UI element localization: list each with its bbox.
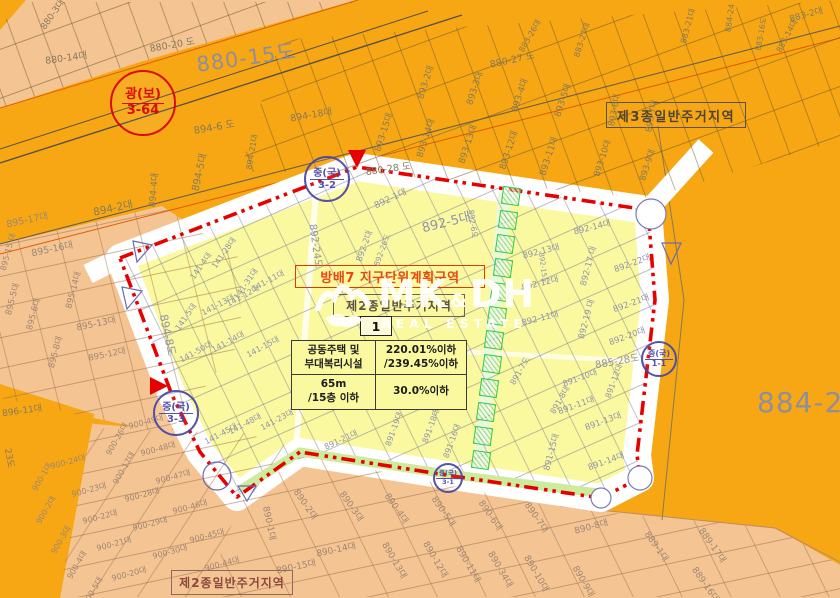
zoning-map: 880-15도 884-2 제3종일반주거지역 제2종일반주거지역 제2종일반주… bbox=[0, 0, 840, 598]
parcel-label: 900-4대 bbox=[65, 549, 90, 581]
green-hatched-square bbox=[495, 234, 515, 254]
parcel-label: 894-21대 bbox=[243, 133, 260, 170]
parcel-label: 891-21대 bbox=[322, 427, 359, 452]
parcel-label: 893-4대 bbox=[507, 77, 530, 114]
stamp-top-text: 광(보) bbox=[122, 88, 164, 103]
green-hatched-square bbox=[471, 450, 491, 470]
parcel-label: 892-17 대 bbox=[577, 245, 599, 287]
stamp-bottom-text: 3-2 bbox=[318, 180, 336, 191]
parcel-label: 892-5대 bbox=[420, 206, 473, 236]
parcel-label: 141-28대 bbox=[209, 235, 238, 271]
stamp-bottom-text: 3-3 bbox=[167, 414, 185, 425]
parcel-label: 894-4대 bbox=[145, 172, 161, 207]
plan-title-box: 방배7 지구단위계획구역 bbox=[295, 265, 485, 288]
parcel-label: 141-14대 bbox=[210, 329, 247, 355]
parcel-label: 896-11대 bbox=[1, 401, 43, 419]
parcel-label: 900-1대 bbox=[30, 461, 55, 493]
parcel-label: 892-13대 bbox=[521, 241, 561, 262]
parcel-label: 892-26도 bbox=[371, 232, 393, 267]
parcel-label: 892-11대 bbox=[520, 308, 560, 329]
parcel-label: 883-2대 bbox=[788, 3, 825, 24]
parcel-label: 891-14대 bbox=[586, 449, 626, 473]
parcel-label: 893-15대 bbox=[371, 111, 396, 153]
parcel-label: 884-24 bbox=[724, 3, 737, 32]
parcel-label: 141-13대 bbox=[200, 292, 237, 318]
stamp-bottom-text: 1-1 bbox=[652, 360, 666, 369]
parcel-label: 891-7도 bbox=[508, 355, 533, 387]
parcel-label: 900-5대 bbox=[81, 575, 106, 598]
parcel-label: 23도 bbox=[2, 447, 18, 469]
stamp-top-text: 중(국) bbox=[159, 402, 193, 414]
parcel-label: 141-15대 bbox=[245, 334, 282, 360]
table-cell-use: 공동주택 및 부대복리시설 bbox=[292, 341, 376, 375]
parcel-label: 141-50대 bbox=[178, 339, 215, 365]
parcel-label: 894-8도 bbox=[156, 313, 180, 358]
parcel-label: 891-10대 bbox=[561, 367, 598, 390]
parcel-label: 895-17대 bbox=[5, 208, 49, 231]
green-hatched-square bbox=[490, 282, 510, 302]
parcel-label: 883-21대 bbox=[678, 7, 698, 44]
parcel-label: 889-1대 bbox=[642, 528, 672, 564]
plan-info-table: 공동주택 및 부대복리시설 220.01%이하 /239.45%이하 65m /… bbox=[291, 340, 467, 410]
parcel-label: 883-26대 bbox=[516, 18, 543, 54]
parcel-label: 893-13대 bbox=[455, 123, 480, 165]
parcel-label: 880-28 도 bbox=[365, 158, 412, 178]
parcel-label: 891-15대 bbox=[540, 432, 561, 472]
parcel-label: 900-2대 bbox=[34, 494, 59, 526]
stamp-top-text: 중(국) bbox=[310, 168, 344, 180]
parcel-label: 889-17대 bbox=[696, 525, 730, 565]
parcel-label: 880-27 도 bbox=[488, 47, 535, 70]
parcel-label: 885-28도 bbox=[594, 349, 641, 372]
parcel-label: 892-20대 bbox=[607, 324, 647, 348]
parcel-label: 895-5대 bbox=[2, 282, 22, 317]
parcel-label: 141-48대 bbox=[227, 411, 264, 437]
parcel-label: 895-8대 bbox=[45, 335, 65, 370]
parcel-label: 891-12대 bbox=[603, 362, 626, 399]
parcel-label: 900-22대 bbox=[81, 507, 118, 527]
parcel-label: 892-19 대 bbox=[575, 298, 597, 340]
big-road-label: 880-15도 bbox=[194, 35, 298, 79]
parcel-label: 880-3대 bbox=[37, 0, 67, 32]
parcel-label: 893-5대 bbox=[550, 82, 573, 119]
green-hatched-square bbox=[479, 378, 499, 398]
parcel-label: 895-6대 bbox=[23, 297, 43, 332]
table-cell-far: 220.01%이하 /239.45%이하 bbox=[376, 341, 466, 375]
parcel-label: 141-12대 bbox=[225, 283, 262, 309]
parcel-label: 895-13대 bbox=[75, 312, 117, 333]
map-stamp: 중(국)3-1 bbox=[433, 463, 463, 493]
parcel-label: 141-5대 bbox=[173, 301, 200, 332]
parcel-label: 900-29대 bbox=[131, 514, 168, 534]
zone-label-2nd-residential-plan: 제2종일반주거지역 bbox=[333, 294, 465, 317]
parcel-label: 900-3대 bbox=[49, 524, 74, 556]
parcel-label: 900-17대 bbox=[110, 450, 137, 486]
green-hatched-square bbox=[498, 210, 518, 230]
green-hatched-square bbox=[476, 402, 496, 422]
parcel-label: 893-3대 bbox=[462, 70, 485, 107]
parcel-label: 893-9대 bbox=[636, 148, 657, 183]
parcel-label: 893-12대 bbox=[496, 129, 521, 171]
parcel-label: 891-16대 bbox=[441, 422, 464, 459]
parcel-label: 889-16대 bbox=[689, 564, 723, 598]
parcel-label: 895-16대 bbox=[30, 237, 74, 260]
parcel-label: 900-46대 bbox=[171, 497, 208, 517]
parcel-label: 892-6도 bbox=[466, 209, 481, 239]
table-cell-height: 65m /15층 이하 bbox=[292, 375, 376, 408]
parcel-label: 895-15 대 bbox=[0, 232, 18, 272]
parcel-label: 895-14대 bbox=[62, 270, 83, 310]
map-stamp: 중(국)1-1 bbox=[641, 341, 677, 377]
parcel-label: 891-11대 bbox=[556, 393, 596, 417]
parcel-label: 893-2대 bbox=[413, 64, 436, 101]
parcel-label: 900-20대 bbox=[110, 564, 147, 584]
green-hatched-square bbox=[501, 186, 521, 206]
parcel-label: 892-24도 bbox=[306, 223, 327, 269]
parcel-label: 891-13대 bbox=[583, 409, 623, 433]
stamp-bottom-text: 3-1 bbox=[442, 479, 454, 486]
green-hatched-square bbox=[493, 258, 513, 278]
zone-label-2nd-residential-bottom: 제2종일반주거지역 bbox=[171, 570, 293, 595]
green-hatched-square bbox=[482, 354, 502, 374]
map-stamp: 광(보)3-64 bbox=[110, 70, 176, 136]
parcel-label: 900-23대 bbox=[70, 480, 107, 500]
parcel-label: 892-12대 bbox=[520, 273, 560, 294]
parcel-label: 892-2대 bbox=[353, 229, 375, 264]
parcel-label: 900-28대 bbox=[123, 485, 160, 505]
parcel-label: 890-8대 bbox=[573, 515, 610, 536]
parcel-label: 892-22대 bbox=[612, 251, 652, 275]
map-stamp: 중(국)3-3 bbox=[153, 390, 199, 436]
parcel-label: 900-21대 bbox=[95, 534, 132, 554]
parcel-label: 890-6대 bbox=[476, 497, 506, 533]
parcel-label: 890-14대 bbox=[315, 538, 357, 559]
parcel-label: 890-9대 bbox=[570, 563, 598, 598]
parcel-label: 890-5대 bbox=[429, 493, 459, 529]
parcel-label: 890-10대 bbox=[521, 552, 552, 593]
parcel-label: 891-8대 bbox=[548, 384, 573, 416]
table-cell-coverage: 30.0%이하 bbox=[376, 375, 466, 408]
zone-label-3rd-residential: 제3종일반주거지역 bbox=[606, 102, 746, 128]
parcel-label: 880-14대 bbox=[44, 47, 88, 67]
parcel-label: 900-24대 bbox=[49, 452, 86, 472]
parcel-label: 890-34대 bbox=[485, 548, 516, 589]
unit-number-box: 1 bbox=[360, 316, 392, 336]
label-layer: 880-15도 884-2 제3종일반주거지역 제2종일반주거지역 제2종일반주… bbox=[0, 0, 840, 598]
parcel-label: 894-18대 bbox=[289, 103, 333, 124]
green-hatched-square bbox=[484, 330, 504, 350]
green-hatched-square bbox=[487, 306, 507, 326]
parcel-label: 893-10대 bbox=[590, 138, 613, 178]
parcel-label: 892-15도 bbox=[536, 252, 550, 284]
big-parcel-label: 884-2 bbox=[757, 386, 840, 419]
parcel-label: 893-14대 bbox=[413, 117, 438, 159]
parcel-label: 890-7대 bbox=[522, 499, 552, 535]
parcel-label: 900-26대 bbox=[103, 421, 130, 457]
parcel-label: 883-14대 bbox=[774, 18, 800, 55]
parcel-label: 891-18대 bbox=[420, 407, 443, 444]
map-stamp: 중(국)3-2 bbox=[304, 156, 350, 202]
parcel-label: 141-11대 bbox=[250, 268, 287, 294]
parcel-label: 895-12대 bbox=[87, 344, 127, 364]
parcel-label: 890-1대 bbox=[260, 505, 280, 541]
parcel-label: 141-45대 bbox=[203, 421, 240, 447]
parcel-label: 900-45대 bbox=[188, 526, 225, 546]
parcel-label: 890-13대 bbox=[379, 539, 410, 580]
parcel-label: 141-23대 bbox=[259, 407, 296, 433]
parcel-label: 890-3대 bbox=[337, 488, 367, 524]
green-hatched-square bbox=[473, 426, 493, 446]
parcel-label: 894-5대 bbox=[187, 152, 210, 193]
parcel-label: 880-20 도 bbox=[148, 33, 195, 55]
parcel-label: 883-16도 bbox=[753, 17, 770, 52]
parcel-label: 892-14대 bbox=[572, 217, 612, 238]
parcel-label: 894-6 도 bbox=[192, 115, 235, 137]
parcel-label: 883-27대 bbox=[571, 21, 592, 58]
parcel-label: 894-2대 bbox=[92, 196, 134, 219]
parcel-label: 892-1대 bbox=[372, 185, 409, 211]
stamp-bottom-text: 3-64 bbox=[127, 104, 160, 118]
parcel-label: 900-47대 bbox=[154, 467, 191, 487]
parcel-label: 890-11대 bbox=[453, 543, 484, 584]
parcel-label: 890-4대 bbox=[382, 490, 412, 526]
parcel-label: 891-19대 bbox=[383, 410, 406, 447]
parcel-label: 141-31대 bbox=[231, 266, 260, 302]
parcel-label: 890-2대 bbox=[291, 486, 321, 522]
parcel-label: 900-30대 bbox=[151, 542, 188, 562]
parcel-label: 900-48대 bbox=[139, 439, 176, 459]
parcel-label: 893-11대 bbox=[536, 135, 561, 177]
parcel-label: 141-4대 bbox=[188, 250, 215, 281]
parcel-label: 892-21대 bbox=[611, 291, 651, 315]
parcel-label: 890-12대 bbox=[420, 538, 451, 579]
